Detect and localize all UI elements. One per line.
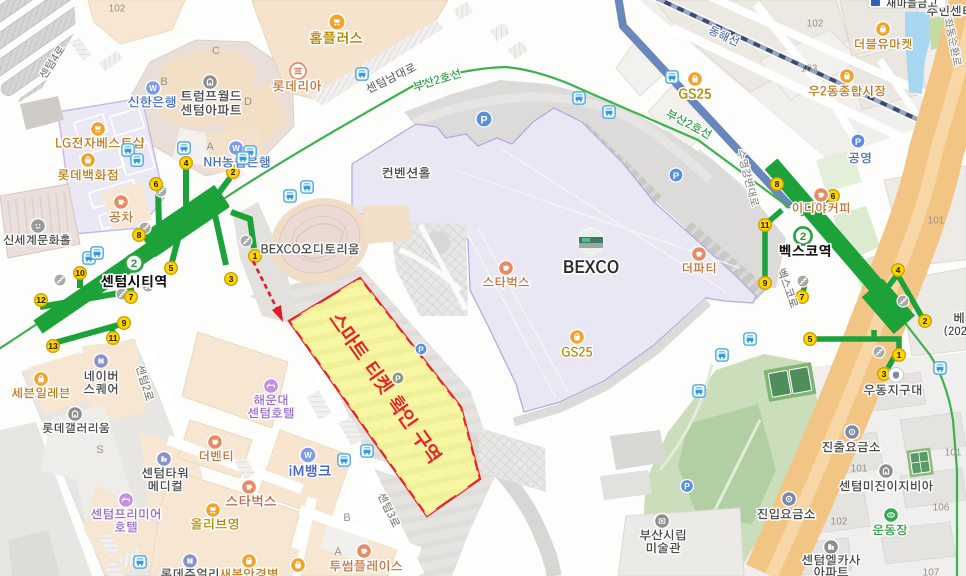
- svg-text:101: 101: [851, 464, 868, 475]
- svg-text:103: 103: [801, 64, 818, 75]
- svg-text:S: S: [96, 444, 103, 456]
- svg-text:7: 7: [129, 292, 134, 302]
- svg-text:P: P: [418, 345, 424, 354]
- svg-text:9: 9: [763, 278, 768, 288]
- svg-text:B: B: [160, 76, 167, 88]
- svg-text:9: 9: [122, 318, 127, 328]
- svg-text:102: 102: [831, 517, 848, 528]
- svg-text:1: 1: [253, 251, 258, 261]
- svg-text:101: 101: [928, 216, 945, 227]
- svg-text:D: D: [244, 96, 252, 108]
- svg-text:8: 8: [775, 179, 780, 189]
- svg-text:A: A: [334, 546, 342, 558]
- svg-text:8: 8: [137, 230, 142, 240]
- svg-text:A: A: [206, 141, 214, 153]
- svg-text:B: B: [343, 512, 350, 524]
- svg-text:3: 3: [882, 369, 887, 379]
- svg-text:P: P: [480, 114, 487, 126]
- svg-text:P: P: [395, 374, 401, 383]
- svg-text:11: 11: [760, 220, 769, 230]
- svg-text:W: W: [149, 84, 157, 93]
- svg-text:1: 1: [897, 350, 902, 360]
- svg-text:P: P: [684, 482, 690, 492]
- svg-text:2: 2: [231, 167, 236, 177]
- svg-text:102: 102: [109, 4, 126, 15]
- svg-text:10: 10: [75, 268, 85, 278]
- svg-text:107: 107: [923, 568, 940, 576]
- svg-text:6: 6: [831, 191, 836, 201]
- svg-text:P: P: [673, 171, 679, 182]
- svg-text:106: 106: [933, 503, 950, 514]
- svg-text:12: 12: [36, 295, 46, 305]
- svg-text:W: W: [304, 451, 312, 460]
- svg-text:2: 2: [923, 316, 928, 326]
- svg-text:C: C: [212, 45, 220, 57]
- svg-text:101: 101: [945, 448, 962, 459]
- svg-text:3: 3: [229, 274, 234, 284]
- svg-text:13: 13: [48, 341, 58, 351]
- svg-text:7: 7: [800, 292, 805, 302]
- svg-text:102: 102: [807, 19, 824, 30]
- svg-text:2: 2: [131, 258, 137, 270]
- svg-text:5: 5: [808, 334, 813, 344]
- svg-text:4: 4: [184, 158, 189, 168]
- svg-text:11: 11: [108, 333, 117, 343]
- svg-text:P: P: [855, 137, 861, 148]
- svg-text:2: 2: [800, 231, 806, 243]
- svg-text:4: 4: [896, 265, 901, 275]
- svg-text:6: 6: [154, 179, 159, 189]
- svg-text:5: 5: [169, 263, 174, 273]
